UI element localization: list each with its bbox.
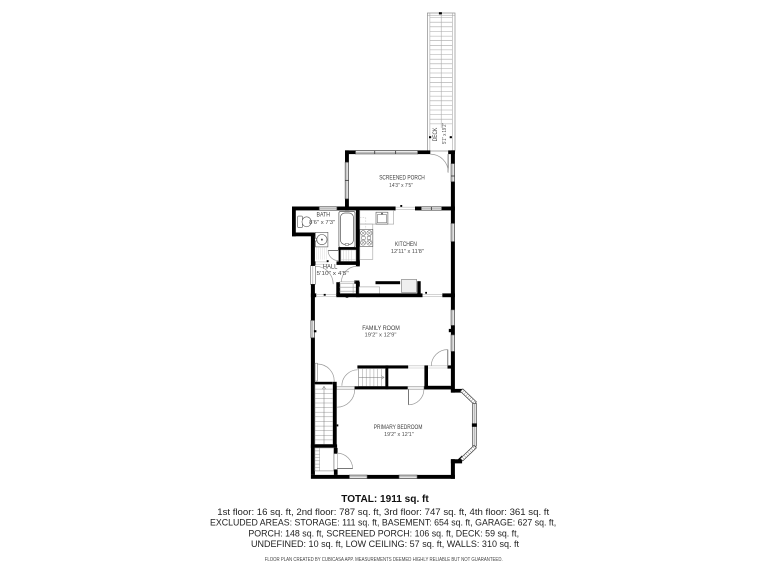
svg-text:UNDEFINED: 10 sq. ft, LOW CEIL: UNDEFINED: 10 sq. ft, LOW CEILING: 57 sq…	[251, 539, 520, 549]
svg-text:19'2" x 12'1": 19'2" x 12'1"	[384, 432, 414, 438]
svg-text:KITCHEN: KITCHEN	[395, 241, 417, 248]
svg-text:5'1" x 19'2": 5'1" x 19'2"	[442, 123, 448, 144]
svg-text:HALL: HALL	[323, 264, 338, 271]
svg-text:SCREENED PORCH: SCREENED PORCH	[379, 175, 425, 182]
svg-text:12'11" x 11'8": 12'11" x 11'8"	[391, 249, 424, 255]
svg-text:PRIMARY BEDROOM: PRIMARY BEDROOM	[374, 424, 423, 431]
svg-text:1st floor: 16 sq. ft, 2nd floo: 1st floor: 16 sq. ft, 2nd floor: 787 sq.…	[217, 507, 549, 517]
svg-text:14'3" x 7'5": 14'3" x 7'5"	[389, 183, 413, 189]
svg-text:8'6" x 7'3": 8'6" x 7'3"	[309, 220, 335, 226]
svg-text:PORCH: 148 sq. ft, SCREENED PO: PORCH: 148 sq. ft, SCREENED PORCH: 106 s…	[248, 528, 519, 538]
svg-text:5'10" x 4'5": 5'10" x 4'5"	[317, 271, 349, 277]
svg-text:BATH: BATH	[317, 212, 331, 219]
svg-text:19'2" x 12'9": 19'2" x 12'9"	[365, 333, 397, 339]
svg-text:EXCLUDED AREAS: STORAGE: 111 s: EXCLUDED AREAS: STORAGE: 111 sq. ft, BAS…	[210, 518, 556, 528]
svg-text:TOTAL: 1911 sq. ft: TOTAL: 1911 sq. ft	[341, 494, 429, 505]
svg-text:DECK: DECK	[432, 127, 439, 141]
svg-text:FAMILY ROOM: FAMILY ROOM	[362, 325, 400, 332]
svg-text:FLOOR PLAN CREATED BY CUBICASA: FLOOR PLAN CREATED BY CUBICASA APP. MEAS…	[265, 557, 503, 563]
